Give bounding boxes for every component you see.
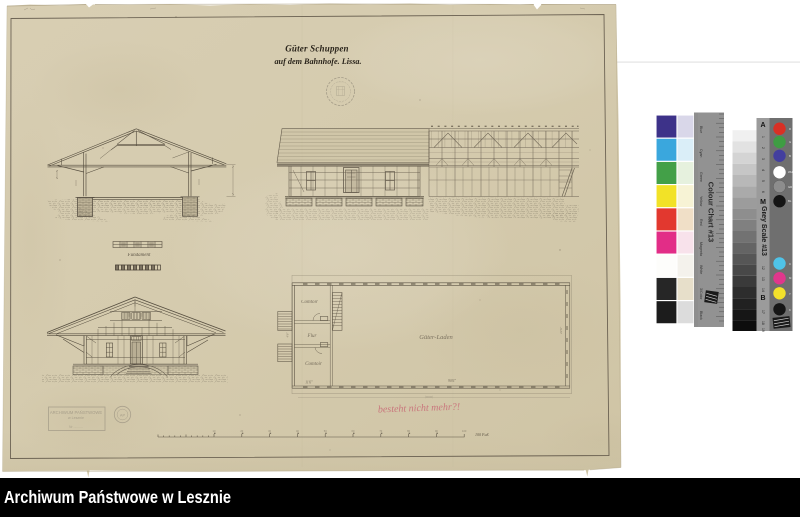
svg-text:Güter-Laden: Güter-Laden	[419, 334, 452, 341]
svg-text:9: 9	[761, 224, 765, 226]
svg-text:24'6": 24'6"	[559, 326, 563, 334]
svg-text:Black: Black	[699, 311, 703, 320]
svg-text:K: K	[789, 308, 791, 312]
svg-text:w Lesznie: w Lesznie	[68, 416, 84, 420]
svg-text:B: B	[760, 295, 765, 302]
svg-text:18: 18	[761, 321, 765, 325]
svg-text:19: 19	[761, 328, 765, 332]
svg-text:Green: Green	[699, 172, 703, 182]
svg-text:·····: ·····	[338, 101, 343, 105]
svg-text:GR: GR	[788, 185, 792, 189]
svg-text:4: 4	[761, 169, 765, 171]
svg-text:4'6": 4'6"	[286, 332, 290, 338]
svg-text:10: 10	[761, 235, 765, 239]
svg-text:Y: Y	[789, 292, 791, 296]
svg-text:White: White	[699, 265, 703, 274]
svg-text:auf dem Bahnhofe. Lissa.: auf dem Bahnhofe. Lissa.	[274, 57, 361, 66]
svg-text:WH: WH	[788, 170, 793, 174]
svg-text:6: 6	[761, 191, 765, 193]
svg-text:Flur: Flur	[307, 334, 317, 339]
svg-text:BL: BL	[788, 199, 792, 203]
svg-text:Nr ..........: Nr ..........	[69, 425, 83, 429]
svg-text:12: 12	[761, 266, 765, 270]
svg-text:3/Color: 3/Color	[699, 288, 703, 300]
svg-text:5: 5	[761, 180, 765, 182]
svg-text:2: 2	[761, 147, 765, 149]
svg-text:14: 14	[761, 288, 765, 292]
svg-text:Cyan: Cyan	[699, 149, 703, 157]
svg-text:C: C	[789, 262, 791, 266]
svg-text:Fundament: Fundament	[127, 253, 151, 258]
svg-text:Yellow: Yellow	[699, 196, 703, 207]
svg-text:AP: AP	[120, 413, 126, 418]
svg-text:17: 17	[761, 310, 765, 314]
svg-text:Colour Chart #13: Colour Chart #13	[707, 182, 716, 242]
svg-text:100: 100	[462, 429, 467, 433]
svg-text:G: G	[789, 140, 791, 144]
svg-text:M: M	[760, 199, 766, 206]
svg-text:Blue: Blue	[699, 126, 703, 133]
svg-text:R: R	[789, 127, 791, 131]
svg-text:Comtoir: Comtoir	[305, 362, 322, 367]
svg-text:Red: Red	[699, 219, 703, 226]
svg-text:11: 11	[761, 246, 765, 250]
svg-text:Magenta: Magenta	[699, 242, 703, 256]
svg-text:3: 3	[761, 158, 765, 160]
svg-text:ARCHIWUM PAŃSTWOWE: ARCHIWUM PAŃSTWOWE	[50, 410, 102, 415]
svg-text:Archiwum Państwowe w Lesznie: Archiwum Państwowe w Lesznie	[4, 487, 231, 507]
svg-text:Güter Schuppen: Güter Schuppen	[285, 44, 349, 54]
svg-text:A: A	[760, 122, 765, 129]
svg-text:90'6": 90'6"	[448, 379, 456, 383]
svg-text:1: 1	[761, 136, 765, 138]
svg-text:·······: ·······	[337, 80, 344, 84]
svg-text:11'6": 11'6"	[305, 381, 313, 385]
svg-text:100 Fuß: 100 Fuß	[475, 432, 488, 437]
svg-text:Comtoir: Comtoir	[301, 300, 318, 305]
svg-text:B: B	[789, 154, 791, 158]
svg-text:13: 13	[761, 277, 765, 281]
svg-text:8: 8	[761, 213, 765, 215]
